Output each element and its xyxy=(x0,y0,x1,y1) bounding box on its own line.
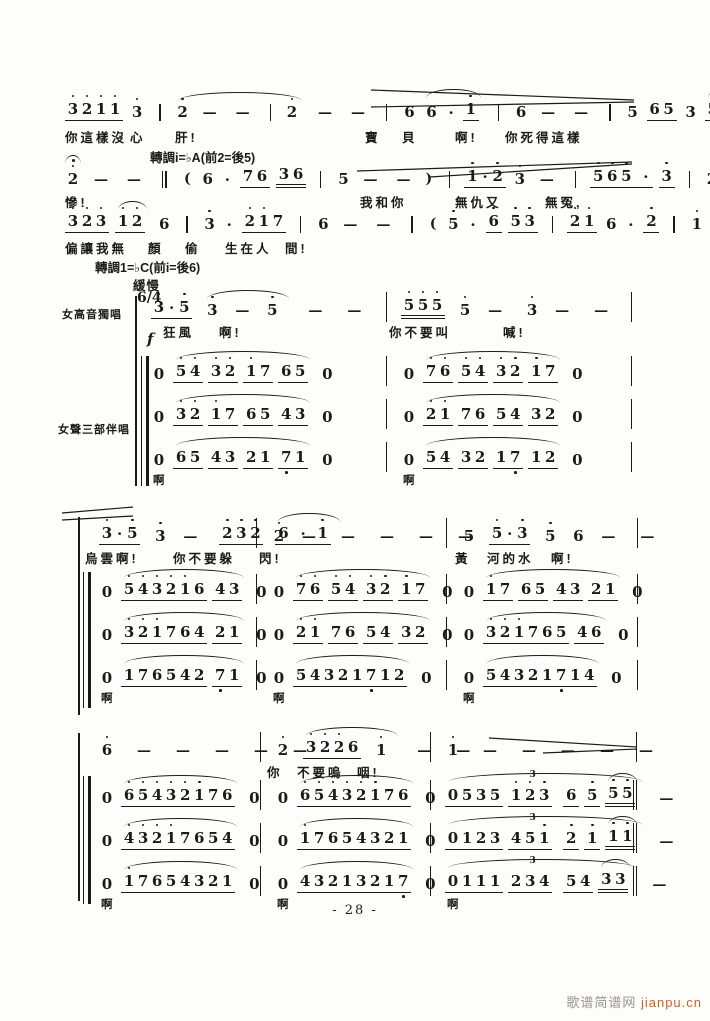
note: 1 xyxy=(260,448,270,466)
note: 1 xyxy=(476,872,486,890)
lyric: 心 xyxy=(130,127,146,146)
digit: 1 xyxy=(352,666,362,684)
note: 6 xyxy=(426,103,436,121)
note: 1 xyxy=(295,448,305,466)
note: 7 xyxy=(510,448,520,466)
barline xyxy=(609,104,610,121)
digit: 5 xyxy=(448,215,458,233)
note: 5 xyxy=(490,786,500,804)
note: 0 xyxy=(572,365,582,383)
digit: 5 xyxy=(622,784,632,802)
digit: 7 xyxy=(510,448,520,466)
note: 1 xyxy=(587,829,597,847)
duration-dash: — xyxy=(601,529,615,545)
note-group: 0 xyxy=(461,626,477,644)
note-group: 3211 xyxy=(65,100,123,121)
digit: 1 xyxy=(310,623,320,641)
lyric: 肝! xyxy=(175,127,198,146)
note: 1 xyxy=(440,405,450,423)
note-group: 3—— xyxy=(524,301,618,319)
octave-dot-above xyxy=(496,162,499,165)
duration-dash: — xyxy=(600,743,614,759)
digit: 7 xyxy=(384,786,394,804)
digit: 1 xyxy=(584,212,594,230)
note-group: 3 xyxy=(683,103,699,121)
digit: 3 xyxy=(514,666,524,684)
note: 2 xyxy=(370,872,380,890)
note-group: 65 xyxy=(173,448,203,469)
note-group: 6—— xyxy=(513,103,595,121)
octave-dot-above xyxy=(469,95,472,98)
duration-dash: — xyxy=(308,303,322,319)
digit: 0 xyxy=(274,583,284,601)
note: 7 xyxy=(314,829,324,847)
note-group: 11 xyxy=(605,827,635,850)
duration-dash: — xyxy=(183,529,197,545)
note: 7 xyxy=(384,786,394,804)
digit: 6 xyxy=(300,786,310,804)
note-group: 234 xyxy=(508,872,552,893)
digit: 0 xyxy=(249,875,259,893)
phrase-group: 3123 xyxy=(508,786,557,807)
lyric: 生在人 xyxy=(225,238,272,257)
note: 6 xyxy=(293,165,303,183)
lyric: 黃 xyxy=(455,548,471,567)
note: 5 xyxy=(462,786,472,804)
phrase-group: 32261 xyxy=(303,738,401,759)
measure: 0176542710啊 xyxy=(85,660,257,690)
note-group: 54321712 xyxy=(293,666,407,687)
digit: 1 xyxy=(440,405,450,423)
digit: 1 xyxy=(246,362,256,380)
note: 6 xyxy=(607,167,617,185)
lyric: 喊! xyxy=(503,322,526,341)
note: 3 xyxy=(366,580,376,598)
digit: 5 xyxy=(663,100,673,118)
ah-lyric: 啊 xyxy=(273,690,285,706)
note-group: 5· xyxy=(445,215,479,233)
note: 4 xyxy=(300,872,310,890)
measure: 2————— xyxy=(257,518,447,548)
digit: 2 xyxy=(510,362,520,380)
digit: 2 xyxy=(246,448,256,466)
measure: 1————— xyxy=(431,732,637,762)
note: 6 xyxy=(159,215,169,233)
note-group: 0 xyxy=(151,365,167,383)
digit: 0 xyxy=(154,451,164,469)
digit: 1 xyxy=(384,872,394,890)
digit: 0 xyxy=(464,669,474,687)
digit: 0 xyxy=(421,669,431,687)
note: 1 xyxy=(486,580,496,598)
digit: 5 xyxy=(208,829,218,847)
duration-dash: — xyxy=(351,105,365,121)
octave-dot-above xyxy=(626,779,629,782)
note-group xyxy=(151,104,168,121)
note: 3 xyxy=(615,870,625,888)
parenthesis: ( xyxy=(184,171,191,188)
digit: 4 xyxy=(300,872,310,890)
note-group: 17 xyxy=(493,448,523,469)
octave-dot-above xyxy=(211,296,214,299)
note-group: 323 xyxy=(65,212,109,233)
note-group xyxy=(403,216,420,233)
note: 5 xyxy=(176,362,186,380)
digit: 4 xyxy=(345,580,355,598)
octave-dot-above xyxy=(612,822,615,825)
note-group: 0 xyxy=(271,626,287,644)
lyric: 啊! xyxy=(551,548,574,567)
note: 1 xyxy=(370,786,380,804)
digit: 2 xyxy=(334,738,344,756)
octave-dot-below xyxy=(219,689,222,692)
digit: 2 xyxy=(82,212,92,230)
note: 3 xyxy=(124,623,134,641)
note-group: 6 xyxy=(99,741,115,759)
note-group: 3— xyxy=(152,527,207,545)
augmentation-dot: · xyxy=(628,217,633,233)
digit: 3 xyxy=(486,623,496,641)
note: 2 xyxy=(528,666,538,684)
note: 3 xyxy=(517,524,527,542)
digit: 2 xyxy=(570,212,580,230)
note-group: 53 xyxy=(508,212,538,233)
note-group: — xyxy=(652,834,680,850)
note: 3 xyxy=(229,580,239,598)
digit: 5 xyxy=(338,170,348,188)
note: 0 xyxy=(102,626,112,644)
digit: 4 xyxy=(281,405,291,423)
phrase-group: 65432171 xyxy=(173,448,313,469)
augmentation-dot: · xyxy=(643,169,648,185)
digit: 6 xyxy=(516,103,526,121)
note: 5 xyxy=(432,296,442,314)
digit: 0 xyxy=(102,789,112,807)
octave-dot-above xyxy=(136,98,139,101)
chorus-line-1: 06543217600654321760053531236555— xyxy=(85,780,637,810)
phrase-group: 54321765 xyxy=(173,362,313,383)
note: 4 xyxy=(577,623,587,641)
digit: 2 xyxy=(646,212,656,230)
octave-dot-above xyxy=(181,98,184,101)
digit: 2 xyxy=(426,405,436,423)
digit: 3 xyxy=(236,524,246,542)
note: 7 xyxy=(398,872,408,890)
digit: 3 xyxy=(279,165,289,183)
digit: 7 xyxy=(314,829,324,847)
digit: 5 xyxy=(608,784,618,802)
note: 3 xyxy=(102,524,112,542)
digit: 2 xyxy=(274,527,284,545)
intro-phrases: 321132——2——66·16——565353你這樣沒心肝!寶貝啊!你死得這樣… xyxy=(65,0,650,290)
parenthesis: ) xyxy=(425,171,432,188)
note: 1 xyxy=(608,827,618,845)
digit: 7 xyxy=(426,362,436,380)
digit: 5 xyxy=(566,872,576,890)
phrase-group: 55 xyxy=(605,784,640,807)
note: 2 xyxy=(225,362,235,380)
note-group: — xyxy=(645,877,673,893)
barline xyxy=(411,216,412,233)
note: 7 xyxy=(426,362,436,380)
note-group: 0 xyxy=(461,583,477,601)
digit: 2 xyxy=(287,103,297,121)
phrase-group: 54321714 xyxy=(483,666,602,687)
digit: 3 xyxy=(155,527,165,545)
duration-dash: — xyxy=(541,105,555,121)
digit: 6 xyxy=(159,215,169,233)
octave-dot-above xyxy=(436,291,439,294)
measure: 0217654320 xyxy=(257,617,447,647)
note: 2 xyxy=(177,103,187,121)
note-group: 17654321 xyxy=(121,872,235,893)
duration-dash: — xyxy=(363,172,377,188)
note: 0 xyxy=(278,832,288,850)
phrase-group: 21765432 xyxy=(423,405,563,426)
digit: 1 xyxy=(370,786,380,804)
digit: 3 xyxy=(96,212,106,230)
digit: 4 xyxy=(475,362,485,380)
digit: 4 xyxy=(556,580,566,598)
digit: 5 xyxy=(166,666,176,684)
note: 0 xyxy=(632,583,642,601)
digit: 0 xyxy=(464,583,474,601)
digit: 2 xyxy=(591,580,601,598)
digit: 6 xyxy=(398,786,408,804)
note-group xyxy=(681,171,698,188)
note: 2 xyxy=(646,212,656,230)
measure: 3·53—5—— xyxy=(137,292,387,322)
octave-dot-above xyxy=(528,207,531,210)
phrase-group: 3—5 xyxy=(204,301,292,319)
note: 0 xyxy=(404,451,414,469)
digit: 5 xyxy=(176,362,186,380)
digit: 4 xyxy=(124,829,134,847)
digit: 1 xyxy=(295,448,305,466)
note: 0 xyxy=(611,669,621,687)
note: 2 xyxy=(132,212,142,230)
digit: 6 xyxy=(440,362,450,380)
note: 5 xyxy=(525,829,535,847)
measure: 0765432170 xyxy=(257,574,447,604)
digit: 5 xyxy=(461,362,471,380)
note: 1 xyxy=(152,623,162,641)
note: 5 xyxy=(460,301,470,319)
duration-dash: — xyxy=(127,172,141,188)
note-group: 6· xyxy=(200,170,234,188)
note: 6 xyxy=(345,623,355,641)
lyric: 你死得這樣 xyxy=(505,127,583,146)
note: 1 xyxy=(465,100,475,118)
note-group: 43 xyxy=(208,448,238,469)
note-group xyxy=(262,104,279,121)
slur-arc xyxy=(426,394,560,403)
note: 1 xyxy=(342,872,352,890)
octave-dot-above xyxy=(543,781,546,784)
note: 3 xyxy=(661,167,671,185)
note: 5 xyxy=(621,167,631,185)
note-group: 65 xyxy=(278,362,308,383)
note: 5 xyxy=(296,666,306,684)
digit: 1 xyxy=(229,666,239,684)
note-group xyxy=(601,104,618,121)
note-group: 6—— xyxy=(315,215,397,233)
digit: 5 xyxy=(138,786,148,804)
note: 0 xyxy=(274,669,284,687)
digit: 1 xyxy=(605,580,615,598)
note-group: 0 xyxy=(271,583,287,601)
note: 3 xyxy=(138,829,148,847)
note-group: 0 xyxy=(569,451,585,469)
digit: 0 xyxy=(572,365,582,383)
note: 1 xyxy=(96,100,106,118)
note: 5 xyxy=(208,829,218,847)
note-group: 2 xyxy=(563,829,579,850)
note-group: 65432176 xyxy=(121,786,235,807)
augmentation-dot: · xyxy=(507,526,512,542)
duration-dash: — xyxy=(659,791,673,807)
note: 0 xyxy=(421,669,431,687)
duration-dash: — xyxy=(236,105,250,121)
note-group: 321764 xyxy=(121,623,207,644)
digit: 5 xyxy=(190,448,200,466)
octave-dot-above xyxy=(665,162,668,165)
ah-lyric: 啊 xyxy=(403,472,415,488)
digit: 2 xyxy=(384,829,394,847)
digit: 3 xyxy=(527,301,537,319)
digit: 1 xyxy=(401,580,411,598)
digit: 7 xyxy=(243,167,253,185)
note-group: 76 xyxy=(458,405,488,426)
note-group: 0123 xyxy=(445,829,503,850)
digit: 3 xyxy=(515,170,525,188)
phrase-group: 17654321 xyxy=(121,872,240,893)
octave-dot-above xyxy=(625,162,628,165)
note-group: 0 xyxy=(275,832,291,850)
note-group: 55 xyxy=(605,784,635,807)
lyric: 偷 xyxy=(185,238,201,257)
digit: 1 xyxy=(110,100,120,118)
note: 2 xyxy=(426,405,436,423)
triplet-label: 3 xyxy=(508,770,557,780)
phrase-group: 6·1 xyxy=(423,100,483,121)
octave-dot-above xyxy=(278,522,281,525)
note: 2 xyxy=(68,170,78,188)
note: 3 xyxy=(514,666,524,684)
lyrics-line: 偏讓我無顏偷生在人間! xyxy=(65,238,650,256)
barline xyxy=(575,171,576,188)
note-group: 321765 xyxy=(483,623,569,644)
duration-dash: — xyxy=(659,834,673,850)
note-group: 0 xyxy=(418,669,434,687)
phrase-group: 43213217 xyxy=(297,872,416,893)
note: 6 xyxy=(152,872,162,890)
digit: 0 xyxy=(572,408,582,426)
digit: 1 xyxy=(692,215,702,233)
note: 3 xyxy=(527,301,537,319)
note-group: 0 xyxy=(99,583,115,601)
note: 1 xyxy=(398,829,408,847)
note-group: 17 xyxy=(528,362,558,383)
barline xyxy=(159,104,160,121)
lyric: 啊! xyxy=(455,127,478,146)
octave-dot-above xyxy=(696,210,699,213)
slur-arc xyxy=(296,612,430,621)
note: 3 xyxy=(211,362,221,380)
digit: 6 xyxy=(606,215,616,233)
note-group: 0 xyxy=(275,875,291,893)
note-group: 32 xyxy=(528,405,558,426)
note: 1 xyxy=(496,448,506,466)
note-group: 6 xyxy=(563,786,579,807)
note-group: 0 xyxy=(99,669,115,687)
note: 0 xyxy=(404,408,414,426)
octave-dot-above xyxy=(384,575,387,578)
note: 7 xyxy=(296,580,306,598)
note: 4 xyxy=(180,872,190,890)
digit: 5 xyxy=(556,623,566,641)
augmentation-dot: · xyxy=(117,526,122,542)
slur-arc xyxy=(486,655,599,664)
note: 0 xyxy=(278,875,288,893)
crescendo-line xyxy=(62,507,133,513)
note: 5 xyxy=(366,623,376,641)
lyrics-line: 慘!我和你無仇又無冤, xyxy=(65,192,650,210)
note: 2 xyxy=(566,829,576,847)
note: 6 xyxy=(310,580,320,598)
phrase-group: 17654321 xyxy=(483,580,623,601)
note-group: 0 xyxy=(608,669,624,687)
note: 5 xyxy=(510,212,520,230)
ah-lyric: 啊 xyxy=(101,690,113,706)
digit: 1 xyxy=(462,829,472,847)
note: 0 xyxy=(249,875,259,893)
note: 6 xyxy=(222,786,232,804)
digit: 3 xyxy=(225,448,235,466)
digit: 5 xyxy=(179,298,189,316)
digit: 2 xyxy=(245,212,255,230)
note: 2 xyxy=(296,623,306,641)
note-group: 0 xyxy=(401,451,417,469)
note-group: 12 xyxy=(115,212,145,233)
note: 5 xyxy=(190,448,200,466)
digit: 1 xyxy=(514,623,524,641)
octave-dot-above xyxy=(543,824,546,827)
note: 0 xyxy=(618,626,628,644)
note-group: 32 xyxy=(458,448,488,469)
note-group: 6 xyxy=(486,212,502,233)
watermark: 歌谱简谱网 jianpu.cn xyxy=(566,992,702,1011)
note-group: 43 xyxy=(212,580,242,601)
digit: 1 xyxy=(222,872,232,890)
octave-dot-above xyxy=(240,519,243,522)
digit: 5 xyxy=(166,872,176,890)
note-group: 6 xyxy=(156,215,172,233)
duration-dash: — xyxy=(235,303,249,319)
digit: 1 xyxy=(300,829,310,847)
note: 2 xyxy=(274,527,284,545)
note: 1 xyxy=(300,829,310,847)
note: 0 xyxy=(322,365,332,383)
note-group: 21 xyxy=(423,405,453,426)
digit: 4 xyxy=(539,872,549,890)
note-group: 71 xyxy=(212,666,242,687)
note: 5 xyxy=(545,527,555,545)
note-group: 217 xyxy=(242,212,286,233)
note: 6 xyxy=(591,623,601,641)
note-group: 0 xyxy=(151,451,167,469)
note: 3 xyxy=(279,165,289,183)
